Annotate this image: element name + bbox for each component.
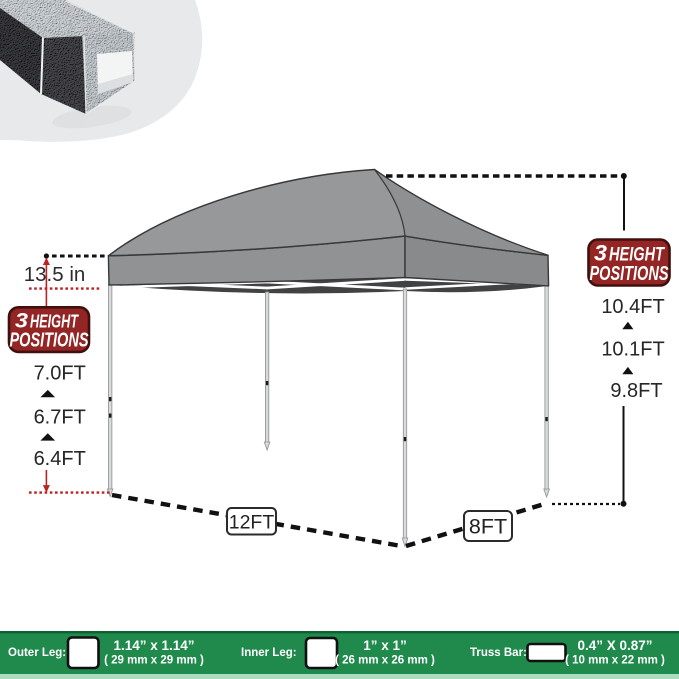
svg-text:8FT: 8FT [469, 515, 507, 539]
svg-text:6.4FT: 6.4FT [34, 448, 86, 470]
svg-text:1.14” x 1.14”: 1.14” x 1.14” [113, 638, 194, 653]
svg-text:10.4FT: 10.4FT [601, 296, 664, 318]
svg-text:1” x 1”: 1” x 1” [363, 638, 407, 653]
svg-text:0.4” X 0.87”: 0.4” X 0.87” [577, 638, 652, 653]
svg-text:7.0FT: 7.0FT [34, 363, 86, 385]
svg-text:6.7FT: 6.7FT [34, 407, 86, 429]
svg-text:HEIGHT: HEIGHT [30, 311, 79, 332]
svg-text:POSITIONS: POSITIONS [10, 330, 89, 352]
svg-text:9.8FT: 9.8FT [610, 380, 662, 402]
svg-text:13.5 in: 13.5 in [24, 263, 86, 286]
svg-text:POSITIONS: POSITIONS [590, 262, 669, 285]
svg-text:Outer Leg:: Outer Leg: [8, 647, 66, 659]
svg-text:10.1FT: 10.1FT [601, 339, 664, 361]
svg-text:( 10 mm x 22 mm ): ( 10 mm x 22 mm ) [565, 655, 665, 667]
svg-text:Inner Leg:: Inner Leg: [241, 647, 297, 659]
svg-text:Truss Bar:: Truss Bar: [470, 647, 527, 659]
svg-text:12FT: 12FT [229, 512, 275, 534]
svg-text:( 26 mm x 26 mm ): ( 26 mm x 26 mm ) [335, 655, 435, 667]
svg-text:( 29 mm x 29 mm ): ( 29 mm x 29 mm ) [104, 655, 204, 667]
